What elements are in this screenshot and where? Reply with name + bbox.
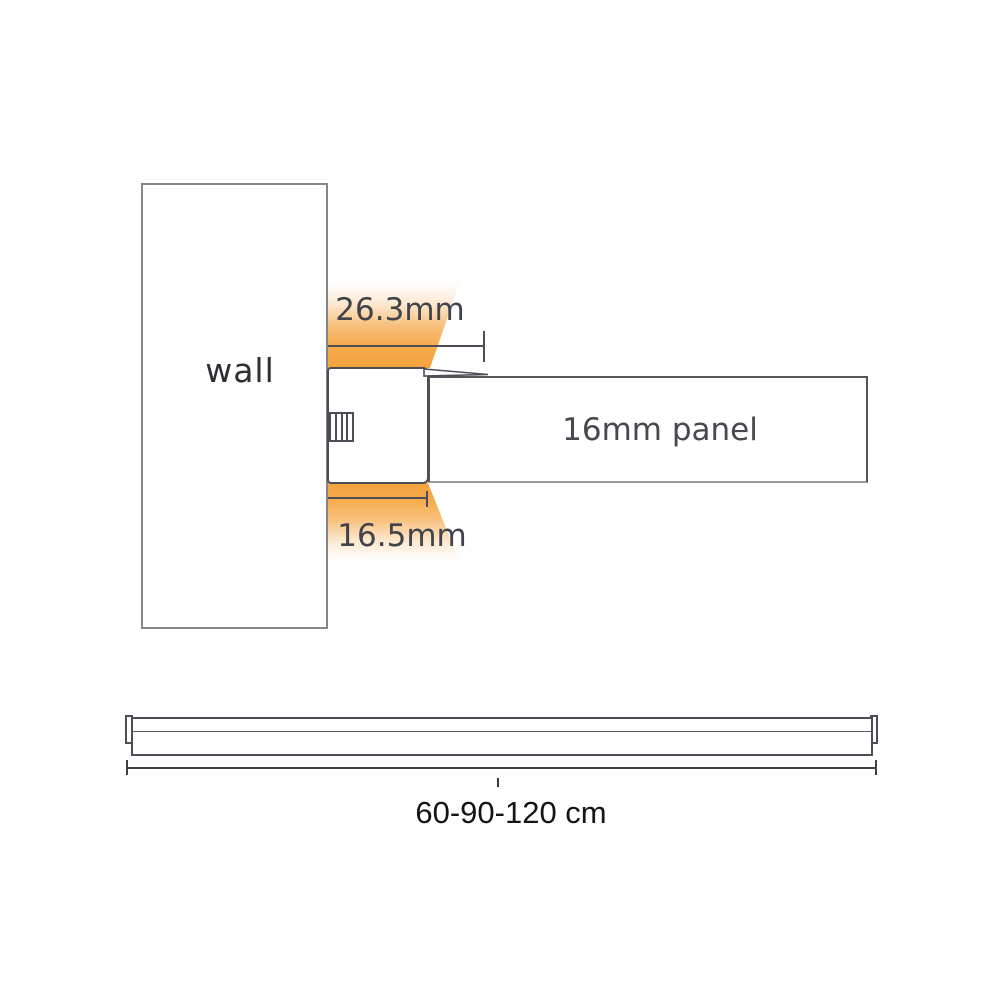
length-center-tick <box>497 778 499 787</box>
frontview-bar <box>131 717 873 756</box>
dimension-tick-top <box>483 331 485 362</box>
dimension-line-top <box>328 345 485 347</box>
panel-rect: 16mm panel <box>428 376 868 483</box>
frontview-bar-midline <box>133 731 871 732</box>
panel-label: 16mm panel <box>562 412 758 448</box>
clip-rib <box>335 414 337 440</box>
length-dimension-tick-right <box>875 760 877 775</box>
clip-rib <box>341 414 343 440</box>
dimension-label-bottom: 16.5mm <box>337 518 466 554</box>
wall-label: wall <box>205 351 275 390</box>
dimension-line-bottom <box>328 497 428 499</box>
lens-wedge <box>422 366 492 378</box>
length-label: 60-90-120 cm <box>415 795 606 831</box>
dimension-tick-bottom <box>426 491 428 507</box>
length-dimension-tick-left <box>126 760 128 775</box>
length-dimension-line <box>127 767 877 769</box>
mounting-clip <box>329 412 354 442</box>
diagram-canvas: wall 16mm panel 26.3mm 16.5mm 60-90-120 … <box>0 0 1000 1000</box>
wall-rect <box>141 183 328 629</box>
dimension-label-top: 26.3mm <box>335 292 464 328</box>
clip-rib <box>346 414 348 440</box>
